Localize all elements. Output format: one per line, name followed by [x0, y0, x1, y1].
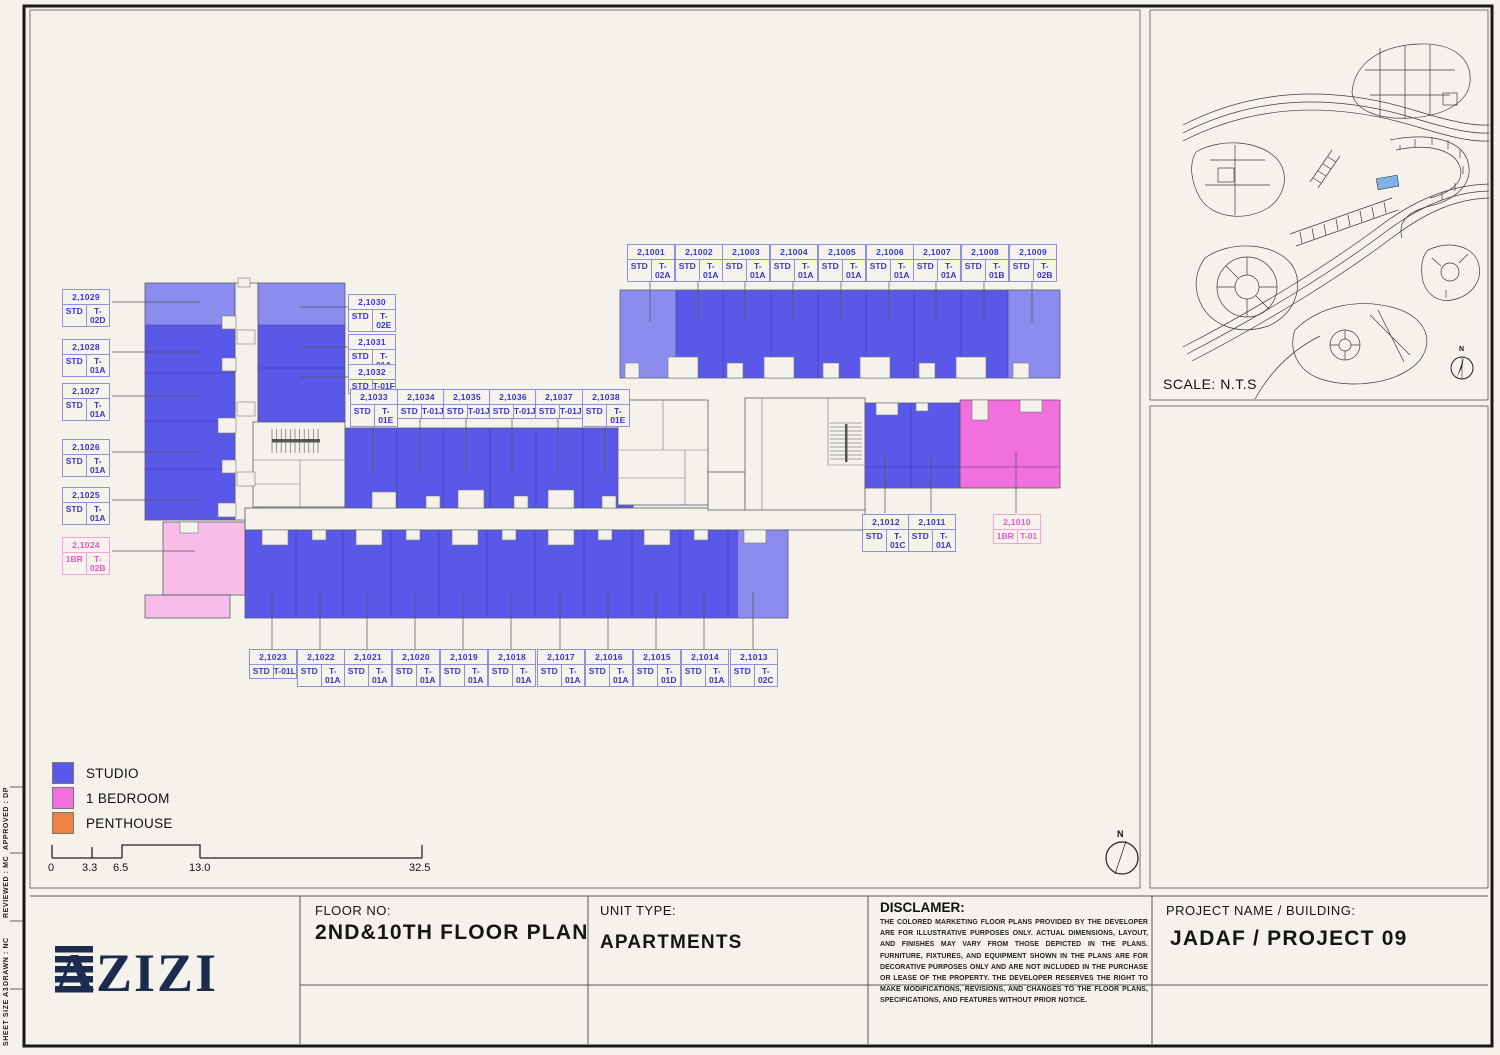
unit-label: 2,10101BRT-01 — [993, 514, 1041, 544]
scale-tick-32-5: 32.5 — [409, 862, 430, 874]
unit-label: 2,1028STDT-01A — [62, 339, 110, 377]
disclaimer-title: DISCLAMER: — [880, 900, 965, 915]
unit-label: 2,1023STDT-01L — [249, 649, 297, 679]
unit-label: 2,1029STDT-02D — [62, 289, 110, 327]
unit-label: 2,1015STDT-01D — [633, 649, 681, 687]
scale-tick-13: 13.0 — [189, 862, 210, 874]
one-bedroom-swatch — [52, 787, 74, 809]
azizi-bars-icon — [55, 946, 93, 994]
unit-label: 2,1006STDT-01A — [866, 244, 914, 282]
floor-no-value: 2ND&10TH FLOOR PLAN — [315, 921, 589, 945]
legend-item-penthouse: PENTHOUSE — [52, 812, 173, 834]
unit-label: 2,1016STDT-01A — [585, 649, 633, 687]
unit-label: 2,1009STDT-02B — [1009, 244, 1057, 282]
unit-label: 2,1021STDT-01A — [344, 649, 392, 687]
unit-label: 2,10241BRT-02B — [62, 537, 110, 575]
margin-note-sheet-size: SHEET SIZE A3 — [3, 990, 10, 1046]
unit-label: 2,1014STDT-01A — [681, 649, 729, 687]
unit-label: 2,1033STDT-01E — [350, 389, 398, 427]
map-north-letter: N — [1459, 346, 1464, 353]
unit-label: 2,1035STDT-01J — [443, 389, 491, 419]
floor-plan-drawing — [0, 0, 1500, 1055]
unit-type-label: UNIT TYPE: — [600, 903, 676, 918]
margin-note-drawn: DRAWN : NC — [3, 912, 10, 986]
legend-label: 1 BEDROOM — [86, 791, 170, 806]
unit-label: 2,1027STDT-01A — [62, 383, 110, 421]
penthouse-swatch — [52, 812, 74, 834]
drawing-sheet: 2,1001STDT-02A 2,1002STDT-01A 2,1003STDT… — [0, 0, 1500, 1055]
unit-type-value: APARTMENTS — [600, 932, 743, 954]
unit-label: 2,1037STDT-01J — [535, 389, 583, 419]
unit-label: 2,1030STDT-02E — [348, 294, 396, 332]
unit-label: 2,1025STDT-01A — [62, 487, 110, 525]
unit-label: 2,1004STDT-01A — [770, 244, 818, 282]
unit-label: 2,1026STDT-01A — [62, 439, 110, 477]
map-highlighted-building — [1376, 175, 1399, 189]
unit-label: 2,1038STDT-01E — [582, 389, 630, 427]
legend-item-one-bedroom: 1 BEDROOM — [52, 787, 170, 809]
north-letter: N — [1117, 829, 1124, 839]
map-scale-note: SCALE: N.T.S — [1163, 376, 1257, 392]
unit-label: 2,1019STDT-01A — [440, 649, 488, 687]
legend-item-studio: STUDIO — [52, 762, 139, 784]
unit-label: 2,1002STDT-01A — [675, 244, 723, 282]
unit-label: 2,1003STDT-01A — [722, 244, 770, 282]
azizi-logo: AZIZI — [55, 946, 218, 1000]
scale-tick-3-3: 3.3 — [82, 862, 97, 874]
unit-label: 2,1005STDT-01A — [818, 244, 866, 282]
unit-label: 2,1018STDT-01A — [488, 649, 536, 687]
legend-label: PENTHOUSE — [86, 816, 173, 831]
location-map — [1183, 44, 1489, 399]
scale-tick-6-5: 6.5 — [113, 862, 128, 874]
project-name-value: JADAF / PROJECT 09 — [1170, 927, 1408, 951]
disclaimer-text: THE COLORED MARKETING FLOOR PLANS PROVID… — [880, 917, 1148, 1007]
unit-label: 2,1008STDT-01B — [961, 244, 1009, 282]
scale-tick-0: 0 — [48, 862, 54, 874]
scale-bar — [52, 845, 422, 858]
unit-label: 2,1013STDT-02C — [730, 649, 778, 687]
unit-label: 2,1012STDT-01C — [862, 514, 910, 552]
legend-label: STUDIO — [86, 766, 139, 781]
unit-label: 2,1022STDT-01A — [297, 649, 345, 687]
project-name-label: PROJECT NAME / BUILDING: — [1166, 903, 1355, 918]
unit-label: 2,1011STDT-01A — [908, 514, 956, 552]
unit-label: 2,1020STDT-01A — [392, 649, 440, 687]
margin-note-reviewed: REVIEWED : MC — [3, 840, 10, 918]
north-compass — [1106, 841, 1138, 874]
unit-label: 2,1001STDT-02A — [627, 244, 675, 282]
floor-no-label: FLOOR NO: — [315, 903, 391, 918]
unit-label: 2,1034STDT-01J — [397, 389, 445, 419]
unit-label: 2,1007STDT-01A — [913, 244, 961, 282]
studio-swatch — [52, 762, 74, 784]
unit-label: 2,1017STDT-01A — [537, 649, 585, 687]
margin-note-approved: APPROVED : DP — [3, 770, 10, 850]
unit-label: 2,1036STDT-01J — [489, 389, 537, 419]
